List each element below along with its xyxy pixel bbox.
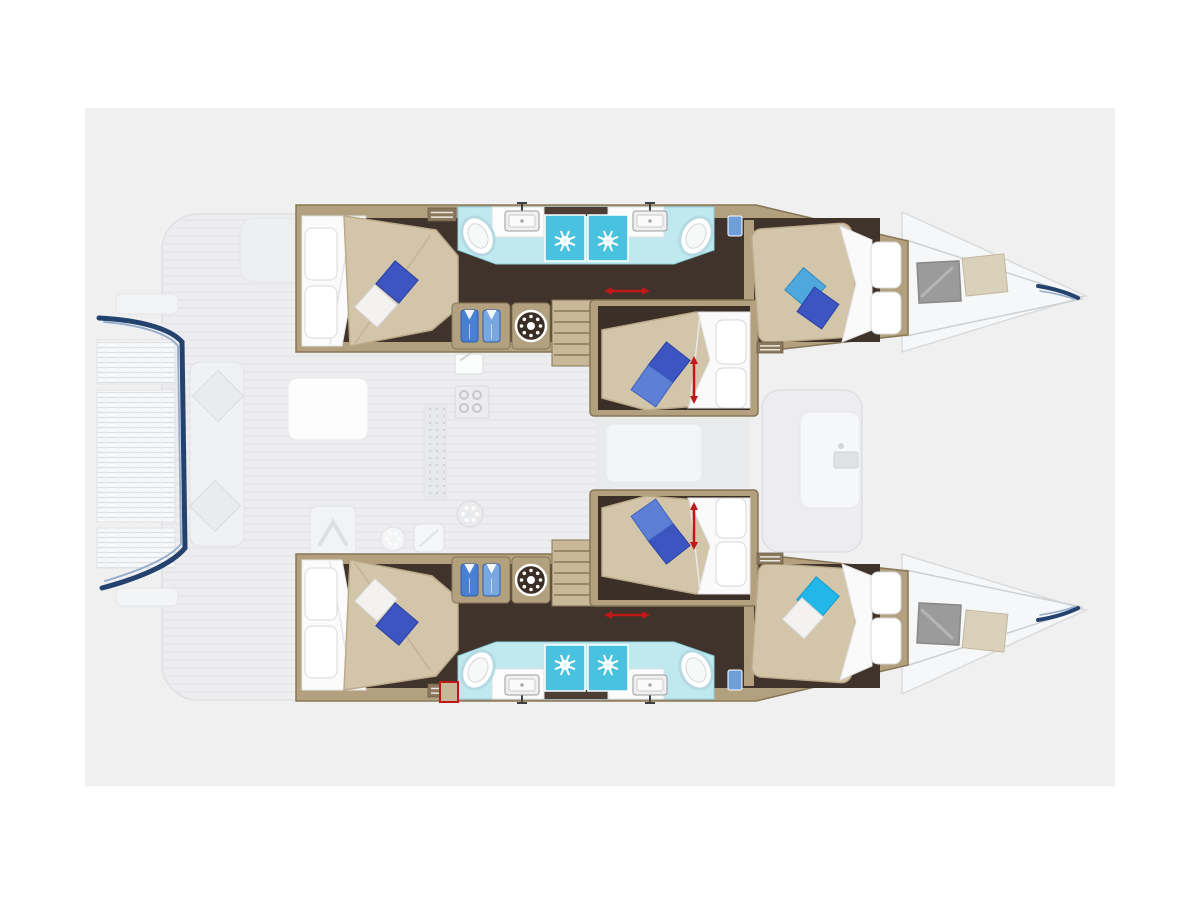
grille-body — [757, 342, 783, 353]
saloon-pass-through-seat — [606, 424, 702, 482]
galley-plate-round — [381, 527, 405, 551]
swim-platform-grate-bottom — [97, 528, 175, 568]
ring-dot — [461, 512, 465, 516]
catamaran-floorplan — [0, 0, 1200, 900]
starboard-fwd-door-panel — [871, 618, 901, 664]
port-aft-door-panel — [305, 286, 337, 338]
mast-dot — [838, 443, 844, 449]
ring-dot — [385, 537, 389, 541]
companionway-stairs — [552, 300, 592, 366]
sun-center — [606, 663, 610, 667]
ring-dot — [522, 331, 526, 335]
ring-dot — [465, 506, 469, 510]
starboard-porthole — [728, 670, 742, 690]
floorplan-image — [0, 0, 1200, 900]
center-aft-door-panel — [716, 498, 746, 538]
red-marked-locker — [440, 682, 458, 702]
stern-step-lower — [116, 588, 178, 606]
port-deck-hatch-beige — [962, 254, 1008, 296]
ring-dot — [529, 334, 533, 338]
hanging-shirt — [483, 310, 500, 342]
sink-drain — [520, 219, 523, 222]
ring-dot — [388, 542, 392, 546]
ring-dot — [475, 512, 479, 516]
ring-dot — [536, 331, 540, 335]
washer-hub — [527, 322, 535, 330]
hanging-shirt — [461, 564, 478, 596]
hanging-shirt — [483, 564, 500, 596]
ring-dot — [520, 578, 524, 582]
port-step-grille — [757, 342, 783, 353]
grille-body — [757, 553, 783, 564]
ring-dot — [536, 585, 540, 589]
port-fwd-door-panel — [871, 242, 901, 288]
mast-step — [834, 452, 858, 468]
ring-dot — [522, 317, 526, 321]
port-porthole — [728, 216, 742, 236]
starboard-deck-hatch-beige — [962, 610, 1008, 652]
sink-drain — [648, 683, 651, 686]
ring-dot — [536, 571, 540, 575]
hanging-shirt — [461, 310, 478, 342]
nav-seat — [310, 506, 356, 556]
sink-drain — [520, 683, 523, 686]
sun-center — [606, 239, 610, 243]
galley-mat — [424, 404, 446, 500]
center-fwd-door-panel — [716, 368, 746, 408]
floorplan-shapes — [85, 108, 1115, 786]
ring-dot — [539, 578, 543, 582]
washer-hub — [527, 576, 535, 584]
center-aft-door-panel — [716, 542, 746, 586]
swim-platform-grate-main — [97, 390, 175, 522]
sink-drain — [648, 219, 651, 222]
ring-dot — [394, 542, 398, 546]
starboard-fwd-door-panel — [871, 572, 901, 614]
center-fwd-door-panel — [716, 320, 746, 364]
companionway-stairs — [552, 540, 592, 606]
ring-dot — [465, 518, 469, 522]
starboard-step-grille — [757, 553, 783, 564]
ring-dot — [522, 571, 526, 575]
ring-dot — [529, 569, 533, 573]
port-aft-shelf — [428, 208, 456, 221]
ring-dot — [520, 324, 524, 328]
galley-stove — [455, 386, 489, 418]
ring-dot — [397, 537, 401, 541]
ring-dot — [388, 532, 392, 536]
galley-sink-faint — [455, 354, 483, 374]
ring-dot — [472, 518, 476, 522]
swim-platform-grate-top — [97, 340, 175, 384]
ring-dot — [472, 506, 476, 510]
saloon-table — [288, 378, 368, 440]
galley-fan-faint — [457, 501, 483, 527]
port-fwd-door-panel — [871, 292, 901, 334]
sun-center — [563, 239, 567, 243]
ring-dot — [539, 324, 543, 328]
stern-step-upper — [116, 294, 178, 314]
ring-dot — [522, 585, 526, 589]
sun-center — [563, 663, 567, 667]
starboard-aft-door-panel — [305, 626, 337, 678]
ring-dot — [529, 315, 533, 319]
port-aft-door-panel — [305, 228, 337, 280]
ring-dot — [536, 317, 540, 321]
ring-dot — [394, 532, 398, 536]
grille-body — [428, 208, 456, 221]
starboard-aft-door-panel — [305, 568, 337, 620]
ring-dot — [529, 588, 533, 592]
